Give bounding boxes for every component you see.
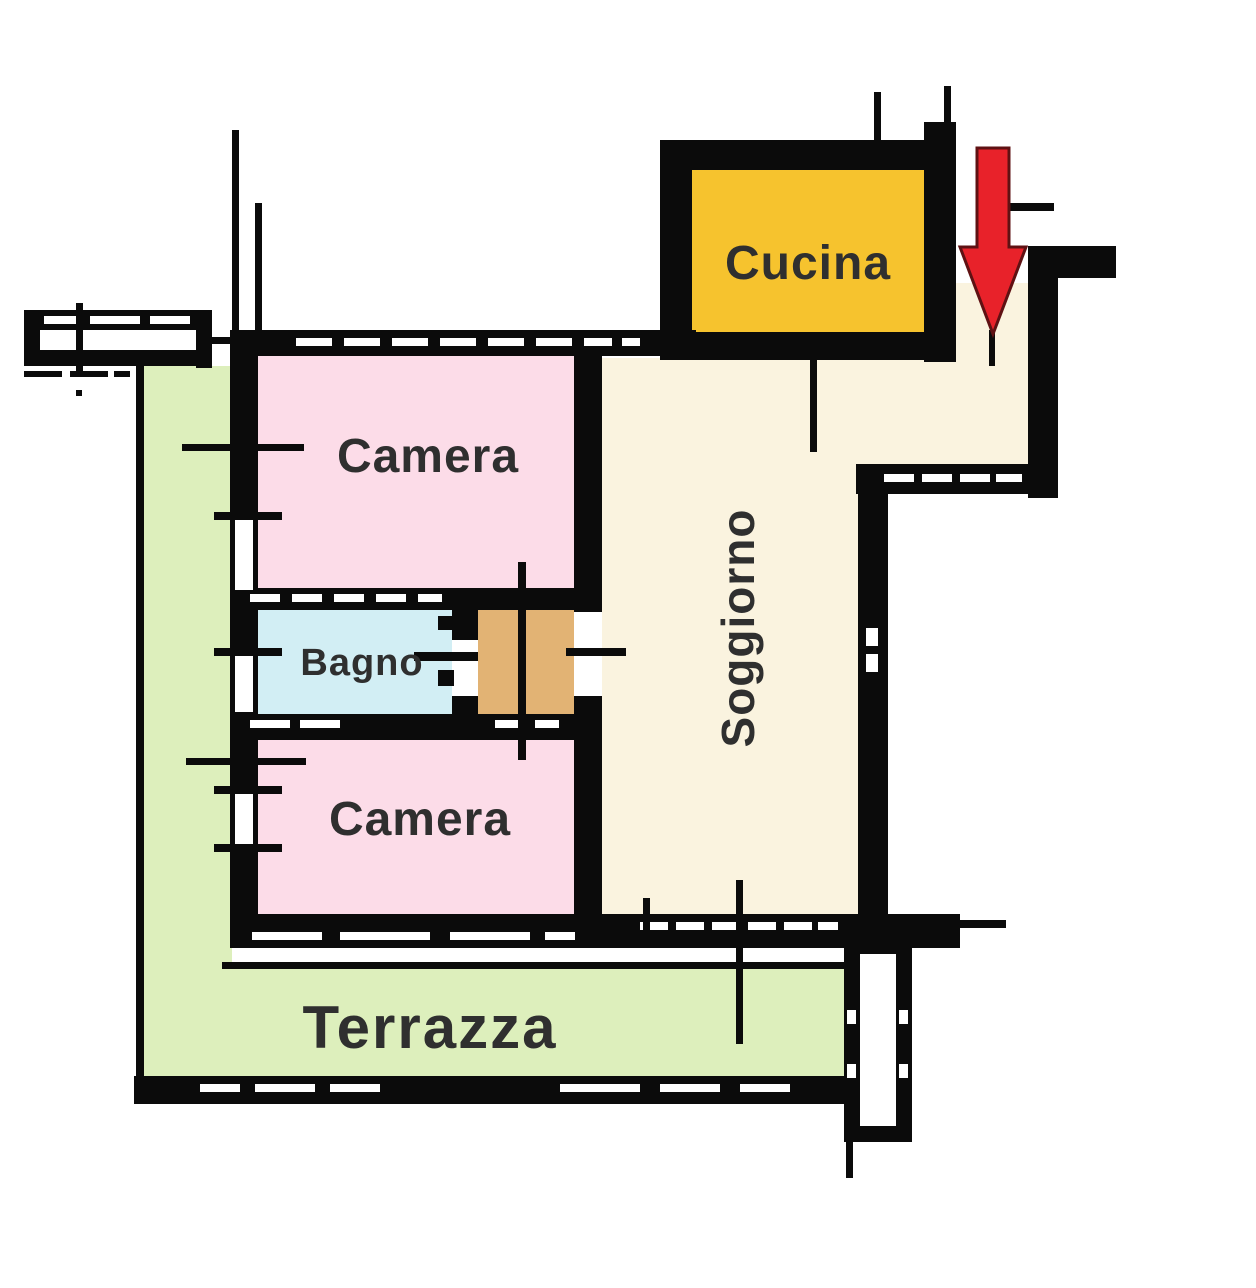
pillar-bottom-cap: [844, 1126, 912, 1142]
wall-top-right-stub: [1028, 246, 1116, 278]
balcony-dot: [76, 390, 82, 396]
window-camera-sud: [235, 794, 253, 844]
balcony-dash-3: [114, 371, 130, 377]
label-terrazza: Terrazza: [302, 994, 557, 1061]
cucina-top-tick: [874, 92, 881, 142]
floor-plan-svg: Cucina Camera Bagno Camera Soggiorno Ter…: [0, 0, 1256, 1288]
wall-camera-bagno: [230, 588, 602, 610]
wall-cucina-left: [660, 140, 692, 360]
balcony-right-cap: [196, 310, 212, 368]
balcony-link-line: [210, 337, 232, 344]
balcony-dash-2: [70, 371, 108, 377]
terrace-edge-thin-line: [222, 962, 856, 969]
soggiorno-south-tick-short: [643, 898, 650, 938]
balcony-dash-1: [24, 371, 62, 377]
entry-side-tick: [1006, 203, 1054, 211]
pillar-interior: [860, 954, 896, 1126]
wall-cucina-right: [924, 122, 956, 362]
soggiorno-south-tick: [736, 880, 743, 1044]
balcony-tick: [76, 303, 83, 375]
bagno-door-jamb-1: [438, 616, 454, 630]
camera-nord-window-tick: [182, 444, 304, 451]
label-soggiorno: Soggiorno: [712, 509, 764, 748]
wall-cucina-top: [660, 140, 956, 170]
wall-cucina-bottom: [660, 332, 956, 360]
window-camera-nord: [235, 520, 253, 590]
wall-west: [230, 330, 258, 948]
bagno-door-jamb-2: [438, 670, 454, 686]
label-bagno: Bagno: [300, 642, 423, 684]
balcony-bottom-bar: [24, 350, 196, 366]
window-bagno: [235, 656, 253, 712]
disimpegno-door-tick: [566, 648, 626, 656]
label-camera-sud: Camera: [329, 793, 511, 846]
label-cucina: Cucina: [725, 237, 891, 290]
terrazza-left-boundary-line: [136, 362, 144, 1104]
south-wall-extension-line: [958, 920, 1006, 928]
boundary-vline-2: [255, 203, 262, 333]
boundary-vline-1: [232, 130, 239, 332]
wall-east: [858, 464, 888, 948]
camera-sud-window-tick: [186, 758, 306, 765]
door-bagno-disimpegno: [452, 640, 478, 696]
pillar-top-cap: [844, 938, 912, 954]
floor-plan-page: Cucina Camera Bagno Camera Soggiorno Ter…: [0, 0, 1256, 1288]
cucina-right-tick: [944, 86, 951, 124]
pillar-lower-tick: [846, 1142, 853, 1178]
cucina-door-tick: [810, 340, 817, 452]
label-camera-nord: Camera: [337, 430, 519, 483]
pillar-left-bar: [844, 938, 860, 1142]
disimpegno-vertical-tick: [518, 562, 526, 760]
south-wall-terrace-gap: [232, 948, 856, 962]
stair-pillar: [844, 938, 912, 1178]
pillar-right-bar: [896, 938, 912, 1142]
